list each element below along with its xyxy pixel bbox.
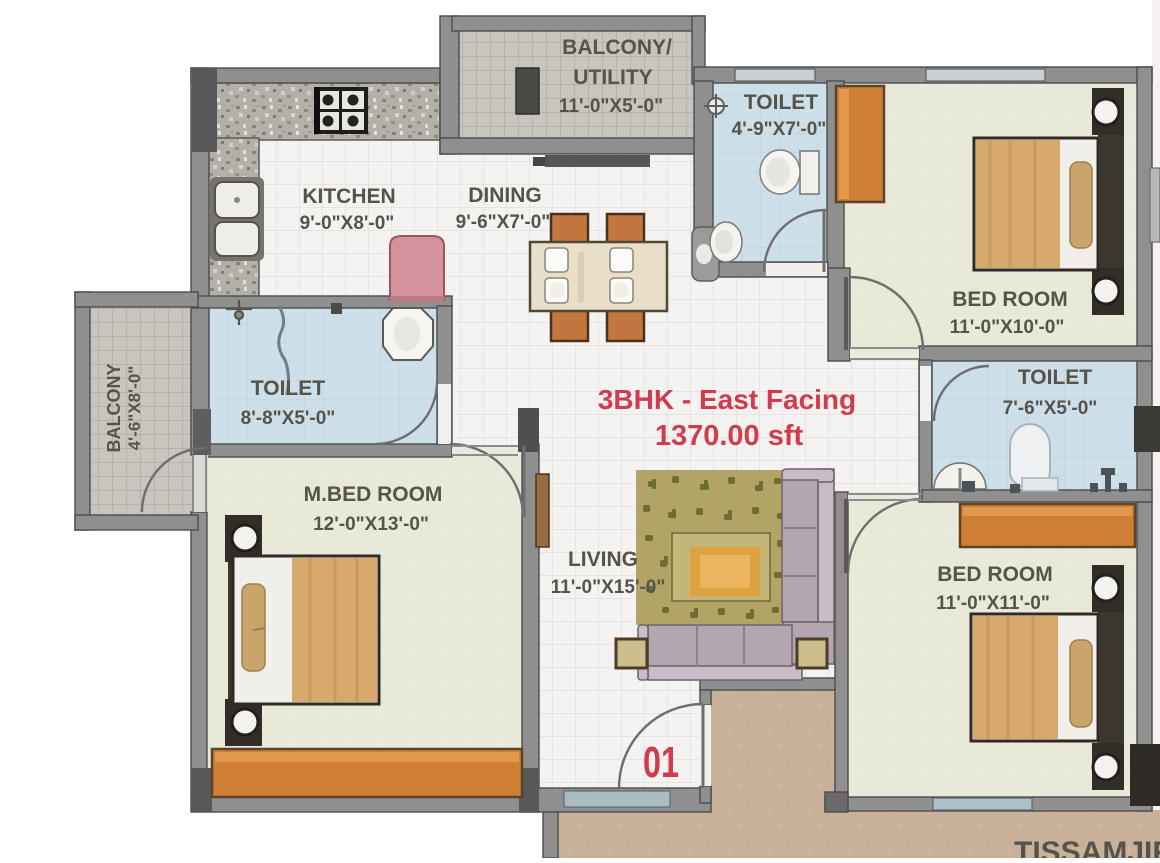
svg-text:BALCONY/: BALCONY/ [562,36,672,59]
svg-text:11'-0"X15'-0": 11'-0"X15'-0" [551,577,666,598]
svg-text:TOILET: TOILET [1018,366,1092,389]
svg-text:7'-6"X5'-0": 7'-6"X5'-0" [1003,398,1098,419]
svg-text:BALCONY: BALCONY [104,364,124,453]
svg-text:4'-6"X8'-0": 4'-6"X8'-0" [125,366,144,451]
svg-text:9'-0"X8'-0": 9'-0"X8'-0" [300,213,395,234]
svg-text:01: 01 [643,738,679,787]
svg-text:11'-0"X11'-0": 11'-0"X11'-0" [936,593,1050,614]
svg-text:UTILITY: UTILITY [573,66,652,89]
svg-text:1370.00 sft: 1370.00 sft [655,420,804,452]
svg-text:BED ROOM: BED ROOM [937,563,1053,586]
svg-text:12'-0"X13'-0": 12'-0"X13'-0" [313,514,429,535]
svg-text:8'-8"X5'-0": 8'-8"X5'-0" [241,408,336,429]
svg-text:TISSAMJIRE: TISSAMJIRE [1014,836,1160,858]
svg-text:M.BED ROOM: M.BED ROOM [304,483,443,506]
svg-text:BED ROOM: BED ROOM [952,288,1068,311]
svg-text:11'-0"X10'-0": 11'-0"X10'-0" [950,317,1065,338]
svg-text:LIVING: LIVING [568,548,638,571]
svg-text:KITCHEN: KITCHEN [302,185,395,208]
svg-text:11'-0"X5'-0": 11'-0"X5'-0" [559,96,663,117]
svg-text:3BHK - East Facing: 3BHK - East Facing [598,384,856,415]
svg-text:TOILET: TOILET [251,377,325,400]
svg-text:TOILET: TOILET [744,91,818,114]
svg-text:9'-6"X7'-0": 9'-6"X7'-0" [456,212,551,233]
svg-text:4'-9"X7'-0": 4'-9"X7'-0" [732,119,827,140]
svg-text:DINING: DINING [468,184,542,207]
